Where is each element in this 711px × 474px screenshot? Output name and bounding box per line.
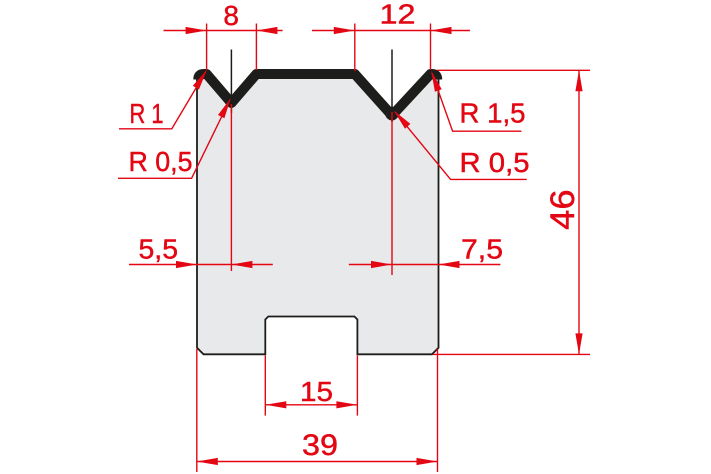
svg-text:7,5: 7,5: [461, 234, 503, 265]
svg-text:R 0,5: R 0,5: [460, 147, 530, 178]
svg-text:46: 46: [544, 189, 582, 230]
svg-text:12: 12: [380, 0, 416, 30]
svg-text:39: 39: [302, 429, 338, 462]
svg-text:8: 8: [223, 0, 239, 31]
svg-text:R 1,5: R 1,5: [460, 98, 526, 129]
svg-text:15: 15: [300, 376, 333, 407]
svg-text:R 1: R 1: [130, 98, 164, 129]
svg-text:R 0,5: R 0,5: [129, 146, 193, 177]
svg-text:5,5: 5,5: [139, 234, 179, 265]
